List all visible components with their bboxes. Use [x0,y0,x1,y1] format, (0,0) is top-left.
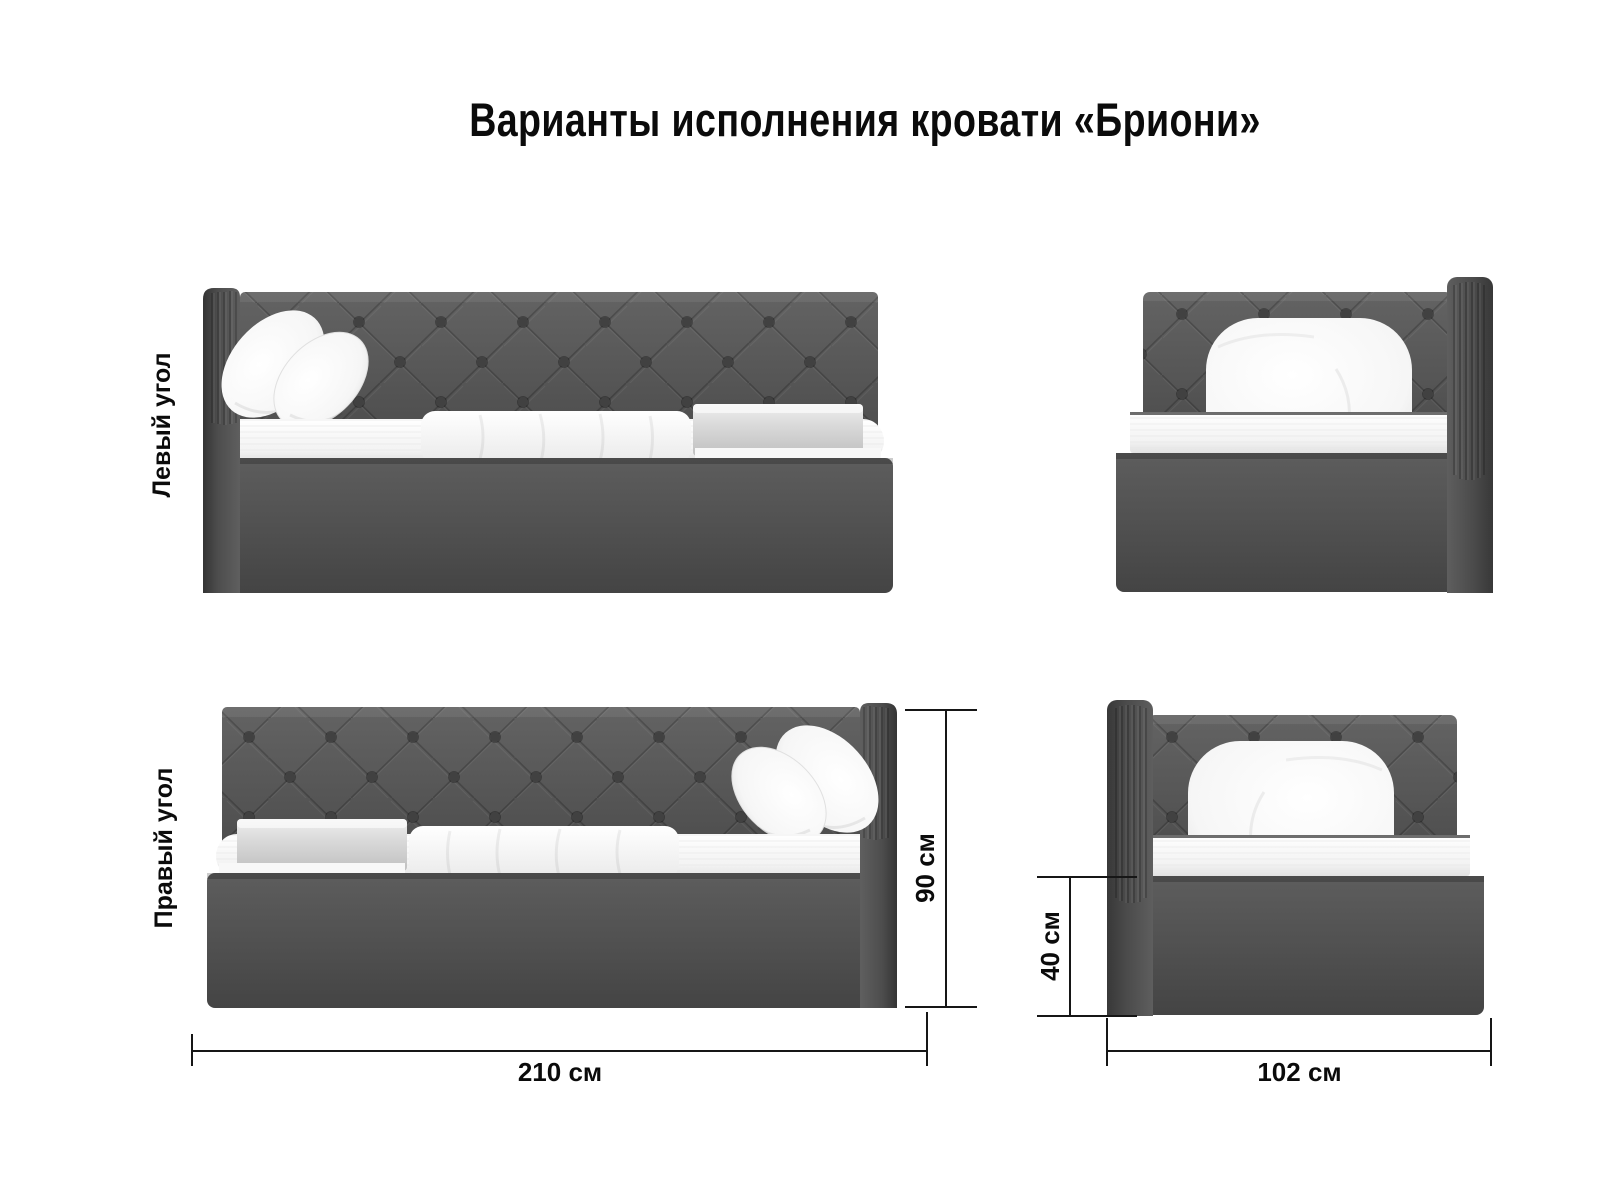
dimension-length-line [192,1050,928,1052]
dimension-height-label: 90 см [910,793,940,943]
bed-front-artwork-mirrored [1107,700,1484,1016]
dimension-height-line [945,710,947,1008]
bed-right-corner-front-view [1105,700,1500,1018]
row-label-right-corner: Правый угол [149,748,179,948]
dimension-height-tick-top [905,709,977,711]
dimension-width-label: 102 см [1107,1057,1492,1088]
dimension-width-line [1107,1050,1492,1052]
bed-right-corner-side-view [195,700,905,1010]
row-label-left-corner: Левый угол [147,325,177,525]
dimension-base-height-line [1069,877,1071,1017]
dimension-length-label: 210 см [192,1057,928,1088]
dimension-height-tick-bottom [905,1006,977,1008]
bed-front-artwork [1116,277,1493,593]
bed-side-artwork [201,288,893,593]
bed-left-corner-side-view [195,285,905,595]
dimension-base-height-label: 40 см [1035,871,1065,1021]
product-diagram: Варианты исполнения кровати «Бриони» Лев… [0,0,1600,1200]
page-title: Варианты исполнения кровати «Бриони» [277,92,1453,147]
bed-left-corner-front-view [1100,277,1495,595]
bed-side-artwork-mirrored [207,703,899,1008]
